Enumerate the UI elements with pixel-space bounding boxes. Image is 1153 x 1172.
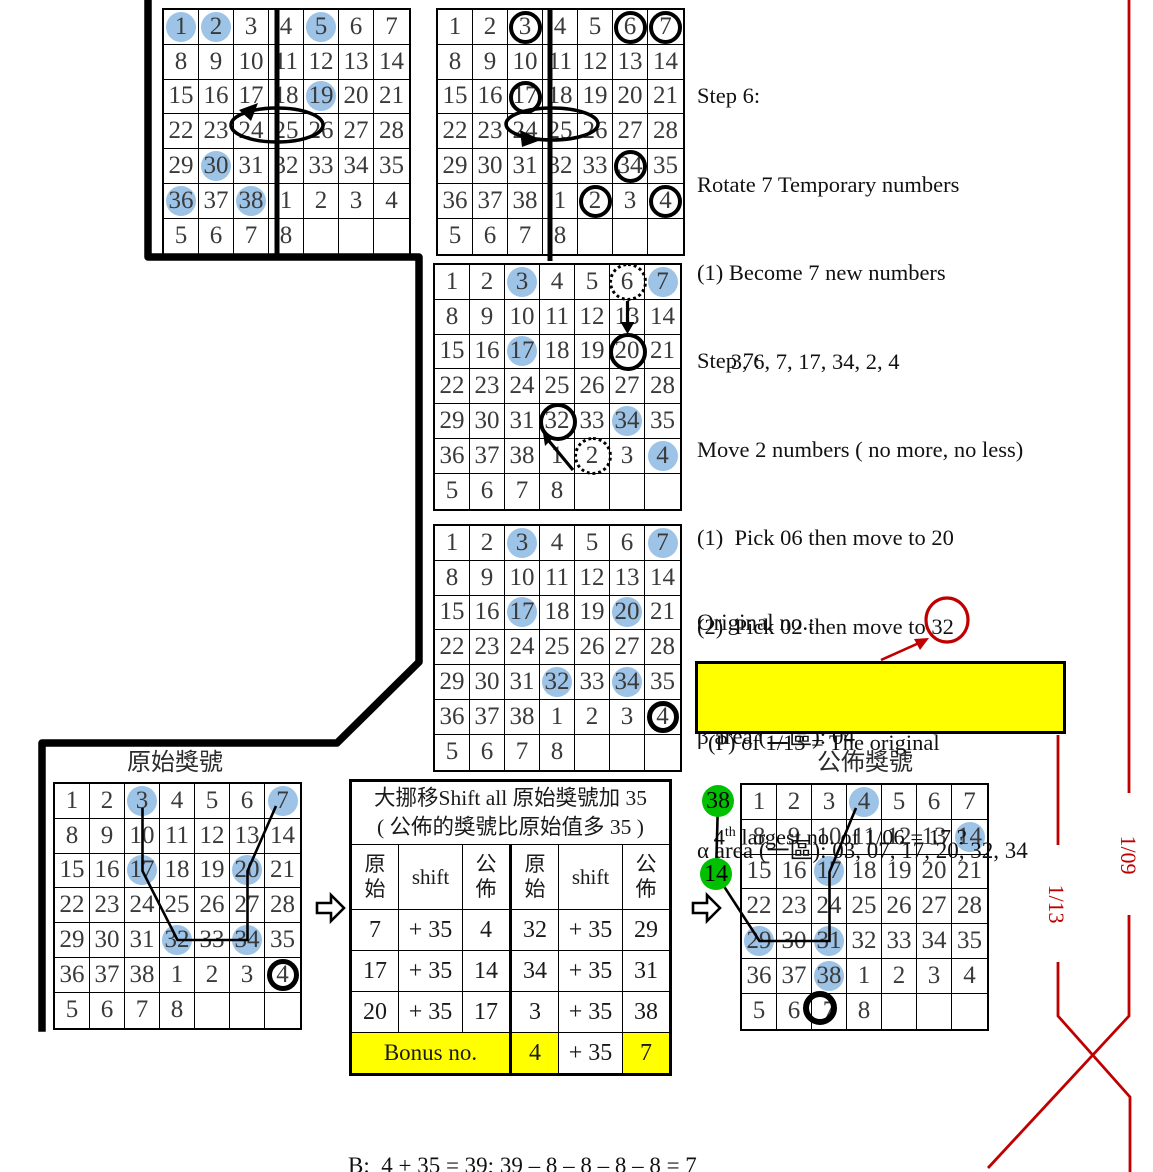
table-cell: 38 — [623, 992, 671, 1033]
grid-cell: 20 — [230, 854, 265, 889]
green-badge-38: 38 — [702, 785, 734, 817]
grid-cell: 5 — [578, 10, 613, 45]
grid-cell: 22 — [164, 114, 199, 149]
grid-cell: 1 — [269, 184, 304, 219]
grid-cell — [374, 219, 409, 254]
grid-cell: 4 — [160, 784, 195, 819]
grid-cell: 2 — [304, 184, 339, 219]
grid-cell: 20 — [339, 80, 374, 115]
grid-cell: 37 — [470, 700, 505, 735]
grid-cell: 15 — [164, 80, 199, 115]
table-cell: 7 — [623, 1033, 671, 1075]
grid-cell: 16 — [470, 335, 505, 370]
grid-cell: 11 — [540, 300, 575, 335]
grid-cell: 2 — [575, 700, 610, 735]
table-cell: 4 — [463, 910, 511, 951]
grid-cell: 9 — [473, 45, 508, 80]
grid-cell: 2 — [90, 784, 125, 819]
grid-cell: 18 — [540, 335, 575, 370]
grid-cell: 14 — [645, 300, 680, 335]
grid-cell: 26 — [195, 888, 230, 923]
grid-cell: 15 — [438, 80, 473, 115]
table-cell: + 35 — [399, 951, 463, 992]
grid-cell: 29 — [438, 149, 473, 184]
grid-cell: 15 — [435, 596, 470, 631]
grid-cell: 7 — [645, 265, 680, 300]
grid-cell: 32 — [540, 665, 575, 700]
grid-cell: 5 — [195, 784, 230, 819]
grid-cell: 13 — [610, 300, 645, 335]
grid-cell: 30 — [473, 149, 508, 184]
grid-cell: 12 — [575, 561, 610, 596]
grid-cell — [575, 735, 610, 770]
step6-line: Rotate 7 Temporary numbers — [697, 170, 959, 200]
grid-cell: 22 — [438, 114, 473, 149]
grid-cell: 5 — [438, 219, 473, 254]
grid-cell: 26 — [304, 114, 339, 149]
grid-cell: 1 — [435, 265, 470, 300]
grid-cell: 1 — [847, 959, 882, 994]
grid-cell: 24 — [508, 114, 543, 149]
grid-cell: 17 — [505, 596, 540, 631]
grid-cell: 6 — [473, 219, 508, 254]
grid-cell: 4 — [269, 10, 304, 45]
grid-cell: 21 — [265, 854, 300, 889]
grid-cell: 4 — [645, 439, 680, 474]
date-label-1-09: 1/09 — [1117, 815, 1141, 895]
grid-cell: 38 — [125, 958, 160, 993]
grid-cell — [917, 994, 952, 1029]
grid-cell: 8 — [269, 219, 304, 254]
grid-cell — [230, 993, 265, 1028]
grid-cell: 2 — [199, 10, 234, 45]
table-cell: 32 — [511, 910, 559, 951]
grid-cell: 12 — [304, 45, 339, 80]
grid-cell: 4 — [540, 526, 575, 561]
grid-cell — [339, 219, 374, 254]
grid-cell: 31 — [234, 149, 269, 184]
grid-cell: 23 — [199, 114, 234, 149]
grid-cell: 3 — [610, 439, 645, 474]
dotted-circle-annotation — [609, 263, 647, 301]
grid-cell: 37 — [470, 439, 505, 474]
grid-cell: 6 — [199, 219, 234, 254]
grid-cell: 33 — [575, 404, 610, 439]
grid-cell: 23 — [473, 114, 508, 149]
grid-cell: 38 — [234, 184, 269, 219]
grid-cell: 9 — [470, 300, 505, 335]
table-cell: 34 — [511, 951, 559, 992]
grid-cell: 16 — [199, 80, 234, 115]
circle-annotation — [509, 11, 542, 44]
shift-table-title: 大挪移Shift all 原始獎號加 35( 公佈的獎號比原始值多 35 ) — [351, 781, 671, 845]
table-cell: + 35 — [399, 910, 463, 951]
grid-cell: 14 — [374, 45, 409, 80]
grid-cell: 21 — [645, 335, 680, 370]
grid-cell: 33 — [575, 665, 610, 700]
grid-cell: 1 — [160, 958, 195, 993]
slide-canvas: 1234567891011121314151617181920212223242… — [0, 0, 1153, 1172]
grid-cell: 37 — [777, 959, 812, 994]
grid-cell: 3 — [234, 10, 269, 45]
grid-cell: 35 — [374, 149, 409, 184]
grid-cell: 7 — [505, 735, 540, 770]
grid-cell — [645, 474, 680, 509]
grid-cell: 37 — [473, 184, 508, 219]
grid-cell: 19 — [304, 80, 339, 115]
grid-cell: 13 — [610, 561, 645, 596]
table-col-header: 原始 — [351, 845, 399, 910]
grid-cell: 21 — [648, 80, 683, 115]
grid-cell: 19 — [575, 335, 610, 370]
circle-annotation — [609, 333, 647, 371]
grid-cell: 5 — [742, 994, 777, 1029]
grid-cell: 16 — [90, 854, 125, 889]
table-cell: 3 — [511, 992, 559, 1033]
grid-cell: 14 — [265, 819, 300, 854]
grid-cell: 17 — [125, 854, 160, 889]
grid-cell: 25 — [269, 114, 304, 149]
grid-cell: 8 — [540, 735, 575, 770]
grid-cell: 8 — [540, 474, 575, 509]
circle-annotation — [647, 701, 679, 733]
grid-cell: 8 — [55, 819, 90, 854]
title-original-draw: 原始獎號 — [90, 742, 260, 777]
grid-cell: 14 — [648, 45, 683, 80]
table-cell: 31 — [623, 951, 671, 992]
grid-cell: 2 — [470, 526, 505, 561]
shift-table-table: 大挪移Shift all 原始獎號加 35( 公佈的獎號比原始值多 35 )原始… — [349, 779, 672, 1076]
grid-cell: 38 — [508, 184, 543, 219]
grid-cell — [575, 474, 610, 509]
grid-cell — [610, 735, 645, 770]
grid-cell: 32 — [160, 923, 195, 958]
grid-cell: 7 — [508, 219, 543, 254]
grid-cell: 7 — [374, 10, 409, 45]
grid-cell: 38 — [812, 959, 847, 994]
block-arrow-left — [317, 895, 344, 921]
grid-cell: 8 — [435, 300, 470, 335]
grid-cell: 36 — [742, 959, 777, 994]
step7-line: Move 2 numbers ( no more, no less) — [697, 435, 1023, 465]
table-cell: + 35 — [559, 992, 623, 1033]
grid-cell: 30 — [199, 149, 234, 184]
circle-annotation — [649, 185, 682, 218]
original-line: Original no.: — [697, 604, 1028, 642]
bonus-note: B: 4 + 35 = 39; 39 – 8 – 8 – 8 – 8 = 7 (… — [348, 1083, 697, 1172]
grid-cell: 18 — [543, 80, 578, 115]
table-cell: 17 — [351, 951, 399, 992]
grid-cell: 37 — [90, 958, 125, 993]
grid-cell: 22 — [435, 369, 470, 404]
grid-cell: 5 — [435, 735, 470, 770]
grid-cell: 5 — [575, 265, 610, 300]
grid-cell: 16 — [473, 80, 508, 115]
grid-original-draw: 1234567891011121314151617181920212223242… — [53, 782, 302, 1030]
grid-cell: 30 — [90, 923, 125, 958]
grid-cell: 2 — [195, 958, 230, 993]
grid-cell: 7 — [125, 993, 160, 1028]
grid-step6-left: 1234567891011121314151617181920212223242… — [162, 8, 411, 256]
grid-step6-right: 1234567891011121314151617181920212223242… — [436, 8, 685, 256]
table-cell: + 35 — [559, 951, 623, 992]
grid-cell: 6 — [470, 735, 505, 770]
grid-cell: 12 — [578, 45, 613, 80]
grid-cell — [578, 219, 613, 254]
bonus-note-line: B: 4 + 35 = 39; 39 – 8 – 8 – 8 – 8 = 7 — [348, 1149, 697, 1172]
grid-cell: 33 — [195, 923, 230, 958]
grid-cell: 18 — [160, 854, 195, 889]
shift-table: 大挪移Shift all 原始獎號加 35( 公佈的獎號比原始值多 35 )原始… — [349, 779, 672, 1076]
grid-cell: 8 — [435, 561, 470, 596]
grid-cell: 2 — [473, 10, 508, 45]
grid-cell: 12 — [195, 819, 230, 854]
grid-cell: 30 — [470, 665, 505, 700]
grid-cell: 22 — [55, 888, 90, 923]
grid-cell: 27 — [610, 630, 645, 665]
grid-cell: 13 — [230, 819, 265, 854]
grid-cell: 1 — [540, 700, 575, 735]
date-label-1-13: 1/13 — [1045, 864, 1069, 944]
grid-cell: 32 — [543, 149, 578, 184]
grid-cell: 7 — [645, 526, 680, 561]
grid-cell: 20 — [613, 80, 648, 115]
grid-cell: 14 — [645, 561, 680, 596]
grid-cell: 2 — [470, 265, 505, 300]
grid-cell: 5 — [575, 526, 610, 561]
table-cell: + 35 — [399, 992, 463, 1033]
red-line-1-09-bottom — [988, 915, 1129, 1168]
grid-cell: 8 — [164, 45, 199, 80]
grid-cell: 10 — [505, 561, 540, 596]
grid-cell: 16 — [470, 596, 505, 631]
grid-cell: 23 — [470, 630, 505, 665]
grid-cell: 36 — [438, 184, 473, 219]
grid-cell: 12 — [575, 300, 610, 335]
grid-cell: 37 — [199, 184, 234, 219]
grid-cell — [648, 219, 683, 254]
grid-cell: 9 — [90, 819, 125, 854]
grid-cell: 10 — [505, 300, 540, 335]
grid-cell: 28 — [265, 888, 300, 923]
grid-cell: 10 — [508, 45, 543, 80]
grid-cell: 38 — [505, 700, 540, 735]
grid-cell: 38 — [505, 439, 540, 474]
grid-cell: 3 — [125, 784, 160, 819]
grid-cell: 8 — [160, 993, 195, 1028]
grid-cell: 17 — [505, 335, 540, 370]
grid-cell: 34 — [339, 149, 374, 184]
dotted-circle-annotation — [574, 437, 612, 475]
grid-cell: 3 — [917, 959, 952, 994]
grid-cell — [645, 735, 680, 770]
grid-cell: 27 — [230, 888, 265, 923]
step6-line: (1) Become 7 new numbers — [697, 258, 959, 288]
grid-cell: 36 — [55, 958, 90, 993]
grid-cell: 4 — [540, 265, 575, 300]
table-cell: + 35 — [559, 1033, 623, 1075]
grid-cell: 7 — [505, 474, 540, 509]
grid-cell: 4 — [952, 959, 987, 994]
grid-cell: 6 — [90, 993, 125, 1028]
grid-cell: 1 — [540, 439, 575, 474]
table-col-header: shift — [399, 845, 463, 910]
grid-cell: 11 — [543, 45, 578, 80]
grid-cell: 15 — [435, 335, 470, 370]
step7-line: Step 7: — [697, 346, 1023, 376]
grid-cell: 25 — [540, 630, 575, 665]
grid-cell: 24 — [505, 630, 540, 665]
circle-annotation — [649, 11, 682, 44]
grid-cell: 31 — [505, 404, 540, 439]
table-cell: 17 — [463, 992, 511, 1033]
grid-cell: 1 — [55, 784, 90, 819]
grid-cell: 7 — [265, 784, 300, 819]
circle-annotation — [614, 11, 647, 44]
grid-cell: 34 — [610, 404, 645, 439]
table-col-header: 原始 — [511, 845, 559, 910]
grid-cell: 3 — [339, 184, 374, 219]
circle-annotation — [539, 403, 577, 441]
grid-cell: 21 — [374, 80, 409, 115]
grid-cell — [952, 994, 987, 1029]
step6-line: Step 6: — [697, 81, 959, 111]
grid-cell: 23 — [90, 888, 125, 923]
grid-cell — [613, 219, 648, 254]
grid-cell: 32 — [269, 149, 304, 184]
grid-cell: 24 — [505, 369, 540, 404]
grid-cell: 30 — [470, 404, 505, 439]
grid-cell: 3 — [610, 700, 645, 735]
grid-cell: 26 — [575, 369, 610, 404]
grid-cell: 35 — [648, 149, 683, 184]
grid-cell: 35 — [265, 923, 300, 958]
grid-cell: 6 — [470, 474, 505, 509]
grid-cell: 5 — [55, 993, 90, 1028]
red-line-1-13-bottom — [1058, 962, 1130, 1172]
circle-annotation — [509, 81, 542, 114]
grid-cell: 3 — [613, 184, 648, 219]
grid-cell: 33 — [578, 149, 613, 184]
bonus-label: Bonus no. — [351, 1033, 511, 1075]
grid-cell: 13 — [339, 45, 374, 80]
grid-cell: 25 — [160, 888, 195, 923]
table-cell: 7 — [351, 910, 399, 951]
grid-cell: 6 — [230, 784, 265, 819]
callout-line: 4th largest no. of 1/06 = 17 ? — [708, 818, 1053, 853]
table-cell: 29 — [623, 910, 671, 951]
grid-cell: 29 — [55, 923, 90, 958]
grid-cell: 29 — [435, 404, 470, 439]
circle-annotation — [614, 150, 647, 183]
grid-cell: 26 — [578, 114, 613, 149]
grid-cell — [195, 993, 230, 1028]
grid-cell: 4 — [374, 184, 409, 219]
grid-cell: 27 — [610, 369, 645, 404]
table-cell: + 35 — [559, 910, 623, 951]
grid-cell: 8 — [847, 994, 882, 1029]
grid-cell: 29 — [164, 149, 199, 184]
grid-step7: 1234567891011121314151617181920212223242… — [433, 263, 682, 511]
grid-cell: 5 — [304, 10, 339, 45]
grid-cell: 27 — [613, 114, 648, 149]
grid-cell: 35 — [645, 665, 680, 700]
grid-cell: 23 — [470, 369, 505, 404]
grid-cell: 35 — [645, 404, 680, 439]
grid-cell: 3 — [230, 958, 265, 993]
callout-line: (P) of 1/13 = The original — [708, 728, 1053, 758]
grid-cell: 29 — [435, 665, 470, 700]
grid-cell: 19 — [575, 596, 610, 631]
grid-cell: 28 — [374, 114, 409, 149]
circle-annotation — [803, 991, 837, 1025]
grid-cell: 15 — [55, 854, 90, 889]
grid-cell — [610, 474, 645, 509]
grid-cell: 28 — [648, 114, 683, 149]
grid-cell: 11 — [160, 819, 195, 854]
grid-cell — [304, 219, 339, 254]
grid-cell: 8 — [438, 45, 473, 80]
circle-annotation — [267, 959, 299, 991]
grid-cell: 28 — [645, 630, 680, 665]
grid-cell: 19 — [195, 854, 230, 889]
grid-cell — [265, 993, 300, 1028]
grid-cell: 31 — [125, 923, 160, 958]
callout-box: (P) of 1/13 = The original 4th largest n… — [695, 661, 1066, 734]
table-cell: 20 — [351, 992, 399, 1033]
grid-cell: 27 — [339, 114, 374, 149]
grid-cell: 25 — [543, 114, 578, 149]
grid-cell: 36 — [164, 184, 199, 219]
grid-cell: 20 — [610, 596, 645, 631]
grid-cell: 1 — [164, 10, 199, 45]
grid-cell: 24 — [125, 888, 160, 923]
grid-cell: 5 — [435, 474, 470, 509]
grid-cell: 21 — [645, 596, 680, 631]
grid-cell: 26 — [575, 630, 610, 665]
grid-cell: 10 — [234, 45, 269, 80]
grid-cell: 36 — [435, 700, 470, 735]
table-col-header: 公佈 — [463, 845, 511, 910]
grid-cell: 1 — [435, 526, 470, 561]
grid-cell: 31 — [505, 665, 540, 700]
grid-cell: 9 — [199, 45, 234, 80]
grid-cell: 24 — [234, 114, 269, 149]
table-cell: 4 — [511, 1033, 559, 1075]
grid-cell: 8 — [543, 219, 578, 254]
grid-cell: 10 — [125, 819, 160, 854]
green-badge-14: 14 — [700, 858, 732, 890]
grid-cell: 34 — [230, 923, 265, 958]
grid-cell: 31 — [508, 149, 543, 184]
grid-cell — [882, 994, 917, 1029]
grid-cell: 18 — [540, 596, 575, 631]
grid-cell: 34 — [610, 665, 645, 700]
grid-cell: 6 — [610, 526, 645, 561]
grid-cell: 3 — [505, 526, 540, 561]
table-col-header: shift — [559, 845, 623, 910]
grid-cell: 19 — [578, 80, 613, 115]
grid-cell: 6 — [339, 10, 374, 45]
grid-cell: 28 — [645, 369, 680, 404]
grid-cell: 7 — [234, 219, 269, 254]
grid-cell: 11 — [269, 45, 304, 80]
grid-cell: 18 — [269, 80, 304, 115]
table-col-header: 公佈 — [623, 845, 671, 910]
grid-cell: 13 — [613, 45, 648, 80]
grid-cell: 1 — [543, 184, 578, 219]
circle-annotation — [579, 185, 612, 218]
